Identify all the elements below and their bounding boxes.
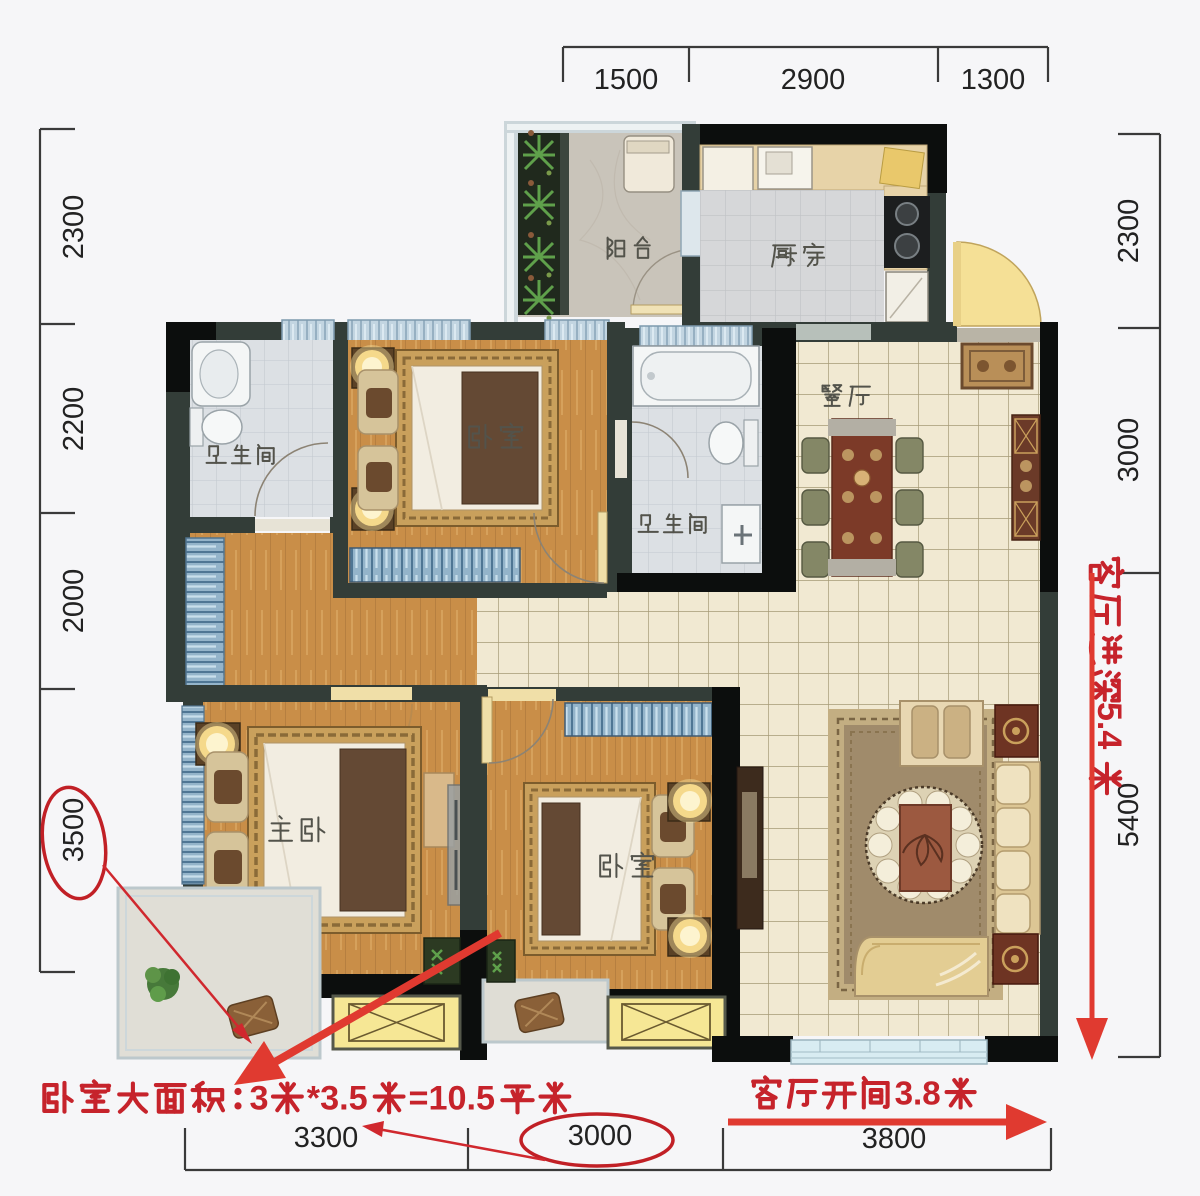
svg-text:5400: 5400 bbox=[1113, 783, 1145, 848]
svg-text:3: 3 bbox=[250, 1080, 269, 1118]
svg-text:3800: 3800 bbox=[862, 1123, 927, 1155]
svg-text:2200: 2200 bbox=[58, 387, 90, 452]
svg-text:3000: 3000 bbox=[1113, 418, 1145, 483]
svg-text:=10.5: =10.5 bbox=[409, 1080, 496, 1118]
svg-text:2000: 2000 bbox=[58, 569, 90, 634]
svg-text:1300: 1300 bbox=[961, 64, 1026, 96]
svg-text:2300: 2300 bbox=[1113, 199, 1145, 264]
svg-text:3000: 3000 bbox=[568, 1120, 633, 1152]
svg-text:3500: 3500 bbox=[58, 798, 90, 863]
svg-text:1500: 1500 bbox=[594, 64, 659, 96]
svg-text:2300: 2300 bbox=[58, 195, 90, 260]
svg-text:2900: 2900 bbox=[781, 64, 846, 96]
svg-text:3.8: 3.8 bbox=[895, 1076, 941, 1113]
svg-text:5.4: 5.4 bbox=[1090, 702, 1128, 749]
svg-text:*3.5: *3.5 bbox=[307, 1080, 368, 1118]
svg-text:3300: 3300 bbox=[294, 1122, 359, 1154]
